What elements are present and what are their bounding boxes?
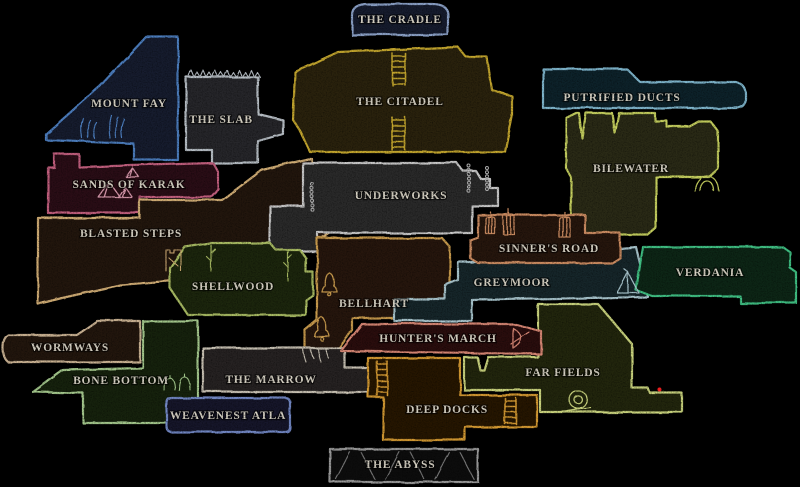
region-label-putrified-ducts: PUTRIFIED DUCTS [563, 92, 680, 104]
region-label-weavenest-atla: WEAVENEST ATLA [170, 410, 286, 422]
region-label-hunters-march: HUNTER'S MARCH [379, 333, 497, 345]
region-label-sands-of-karak: SANDS OF KARAK [72, 179, 185, 191]
region-label-the-cradle: THE CRADLE [358, 14, 442, 26]
region-label-sinners-road: SINNER'S ROAD [499, 243, 599, 255]
region-label-the-slab: THE SLAB [189, 114, 253, 126]
region-label-the-citadel: THE CITADEL [356, 96, 444, 108]
map-canvas: THE CRADLEMOUNT FAYTHE SLABTHE CITADELPU… [0, 0, 800, 487]
region-label-bone-bottom: BONE BOTTOM [73, 375, 169, 387]
region-label-the-abyss: THE ABYSS [365, 459, 436, 471]
region-label-wormways: WORMWAYS [31, 342, 109, 354]
region-label-bilewater: BILEWATER [593, 163, 669, 175]
region-label-blasted-steps: BLASTED STEPS [80, 228, 182, 240]
world-map: THE CRADLEMOUNT FAYTHE SLABTHE CITADELPU… [0, 0, 800, 487]
region-shellwood[interactable] [170, 243, 313, 315]
region-label-mount-fay: MOUNT FAY [91, 98, 167, 110]
region-label-the-marrow: THE MARROW [225, 374, 316, 386]
region-label-deep-docks: DEEP DOCKS [406, 404, 488, 416]
region-label-far-fields: FAR FIELDS [525, 367, 600, 379]
region-label-underworks: UNDERWORKS [355, 190, 448, 202]
region-label-shellwood: SHELLWOOD [192, 281, 274, 293]
map-marker-dot [658, 388, 662, 392]
region-label-greymoor: GREYMOOR [474, 277, 551, 289]
region-label-verdania: VERDANIA [676, 267, 744, 279]
region-label-bellhart: BELLHART [339, 298, 409, 310]
